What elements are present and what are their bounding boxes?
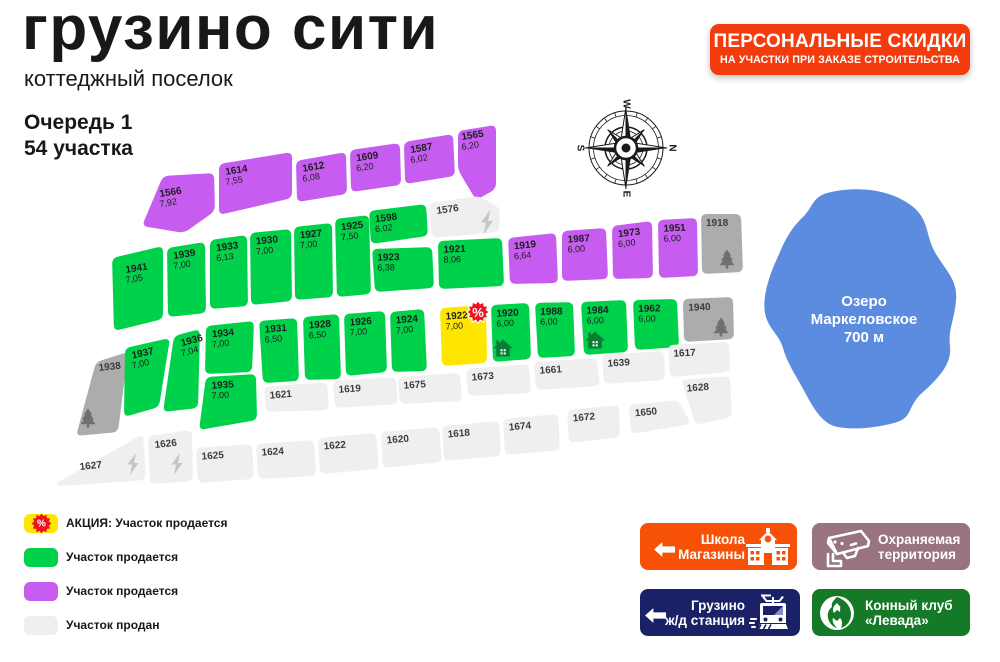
svg-text:1675: 1675 (403, 379, 426, 391)
svg-text:Маркеловское: Маркеловское (811, 311, 918, 328)
svg-text:1621: 1621 (269, 389, 292, 402)
svg-text:6,64: 6,64 (513, 250, 531, 262)
svg-text:6,00: 6,00 (567, 243, 585, 254)
svg-text:7,50: 7,50 (340, 230, 359, 242)
svg-text:1625: 1625 (201, 450, 224, 463)
svg-text:6,50: 6,50 (264, 333, 282, 344)
svg-text:1673: 1673 (471, 371, 494, 384)
svg-text:E: E (621, 191, 632, 198)
svg-text:1661: 1661 (539, 364, 562, 376)
svg-text:%: % (472, 305, 484, 320)
svg-text:%: % (37, 519, 46, 530)
svg-text:1674: 1674 (508, 420, 532, 433)
svg-text:1918: 1918 (706, 218, 729, 229)
svg-text:8,06: 8,06 (443, 254, 461, 265)
svg-text:700 м: 700 м (844, 329, 884, 346)
svg-text:7,00: 7,00 (349, 326, 367, 337)
svg-text:S: S (575, 145, 586, 152)
svg-text:6,00: 6,00 (586, 315, 604, 326)
svg-text:6,00: 6,00 (496, 318, 514, 329)
svg-text:Озеро: Озеро (841, 293, 887, 310)
svg-text:6,00: 6,00 (540, 316, 558, 326)
svg-text:1617: 1617 (673, 348, 696, 360)
svg-text:1672: 1672 (572, 411, 596, 424)
svg-text:6,00: 6,00 (638, 314, 656, 324)
svg-text:1622: 1622 (323, 440, 347, 453)
svg-text:1620: 1620 (386, 434, 410, 447)
svg-text:1624: 1624 (261, 446, 284, 459)
svg-text:6,02: 6,02 (374, 222, 393, 234)
svg-text:7,00: 7,00 (395, 324, 413, 335)
svg-text:W: W (621, 99, 632, 109)
svg-text:1619: 1619 (338, 383, 361, 395)
svg-text:6,50: 6,50 (308, 329, 326, 340)
svg-text:1628: 1628 (686, 382, 710, 395)
svg-text:1639: 1639 (607, 357, 630, 369)
svg-text:1618: 1618 (447, 428, 471, 441)
svg-text:6,38: 6,38 (377, 262, 395, 273)
svg-text:1940: 1940 (688, 302, 711, 314)
svg-text:1650: 1650 (634, 406, 658, 419)
svg-text:7,00: 7,00 (211, 338, 229, 350)
svg-text:7,00: 7,00 (211, 390, 229, 401)
svg-text:N: N (667, 144, 678, 151)
svg-text:7,00: 7,00 (299, 239, 317, 251)
svg-text:6,00: 6,00 (663, 233, 681, 244)
svg-text:7,00: 7,00 (255, 245, 273, 257)
svg-text:7,00: 7,00 (445, 320, 463, 331)
